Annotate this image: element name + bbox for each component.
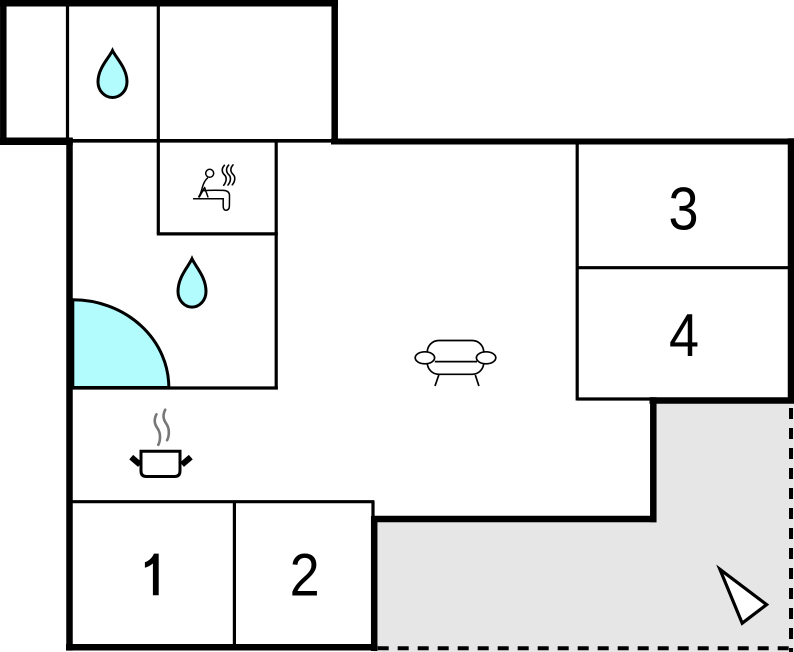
svg-text:4: 4 <box>669 302 699 369</box>
svg-text:3: 3 <box>668 176 698 243</box>
svg-text:2: 2 <box>290 542 320 609</box>
